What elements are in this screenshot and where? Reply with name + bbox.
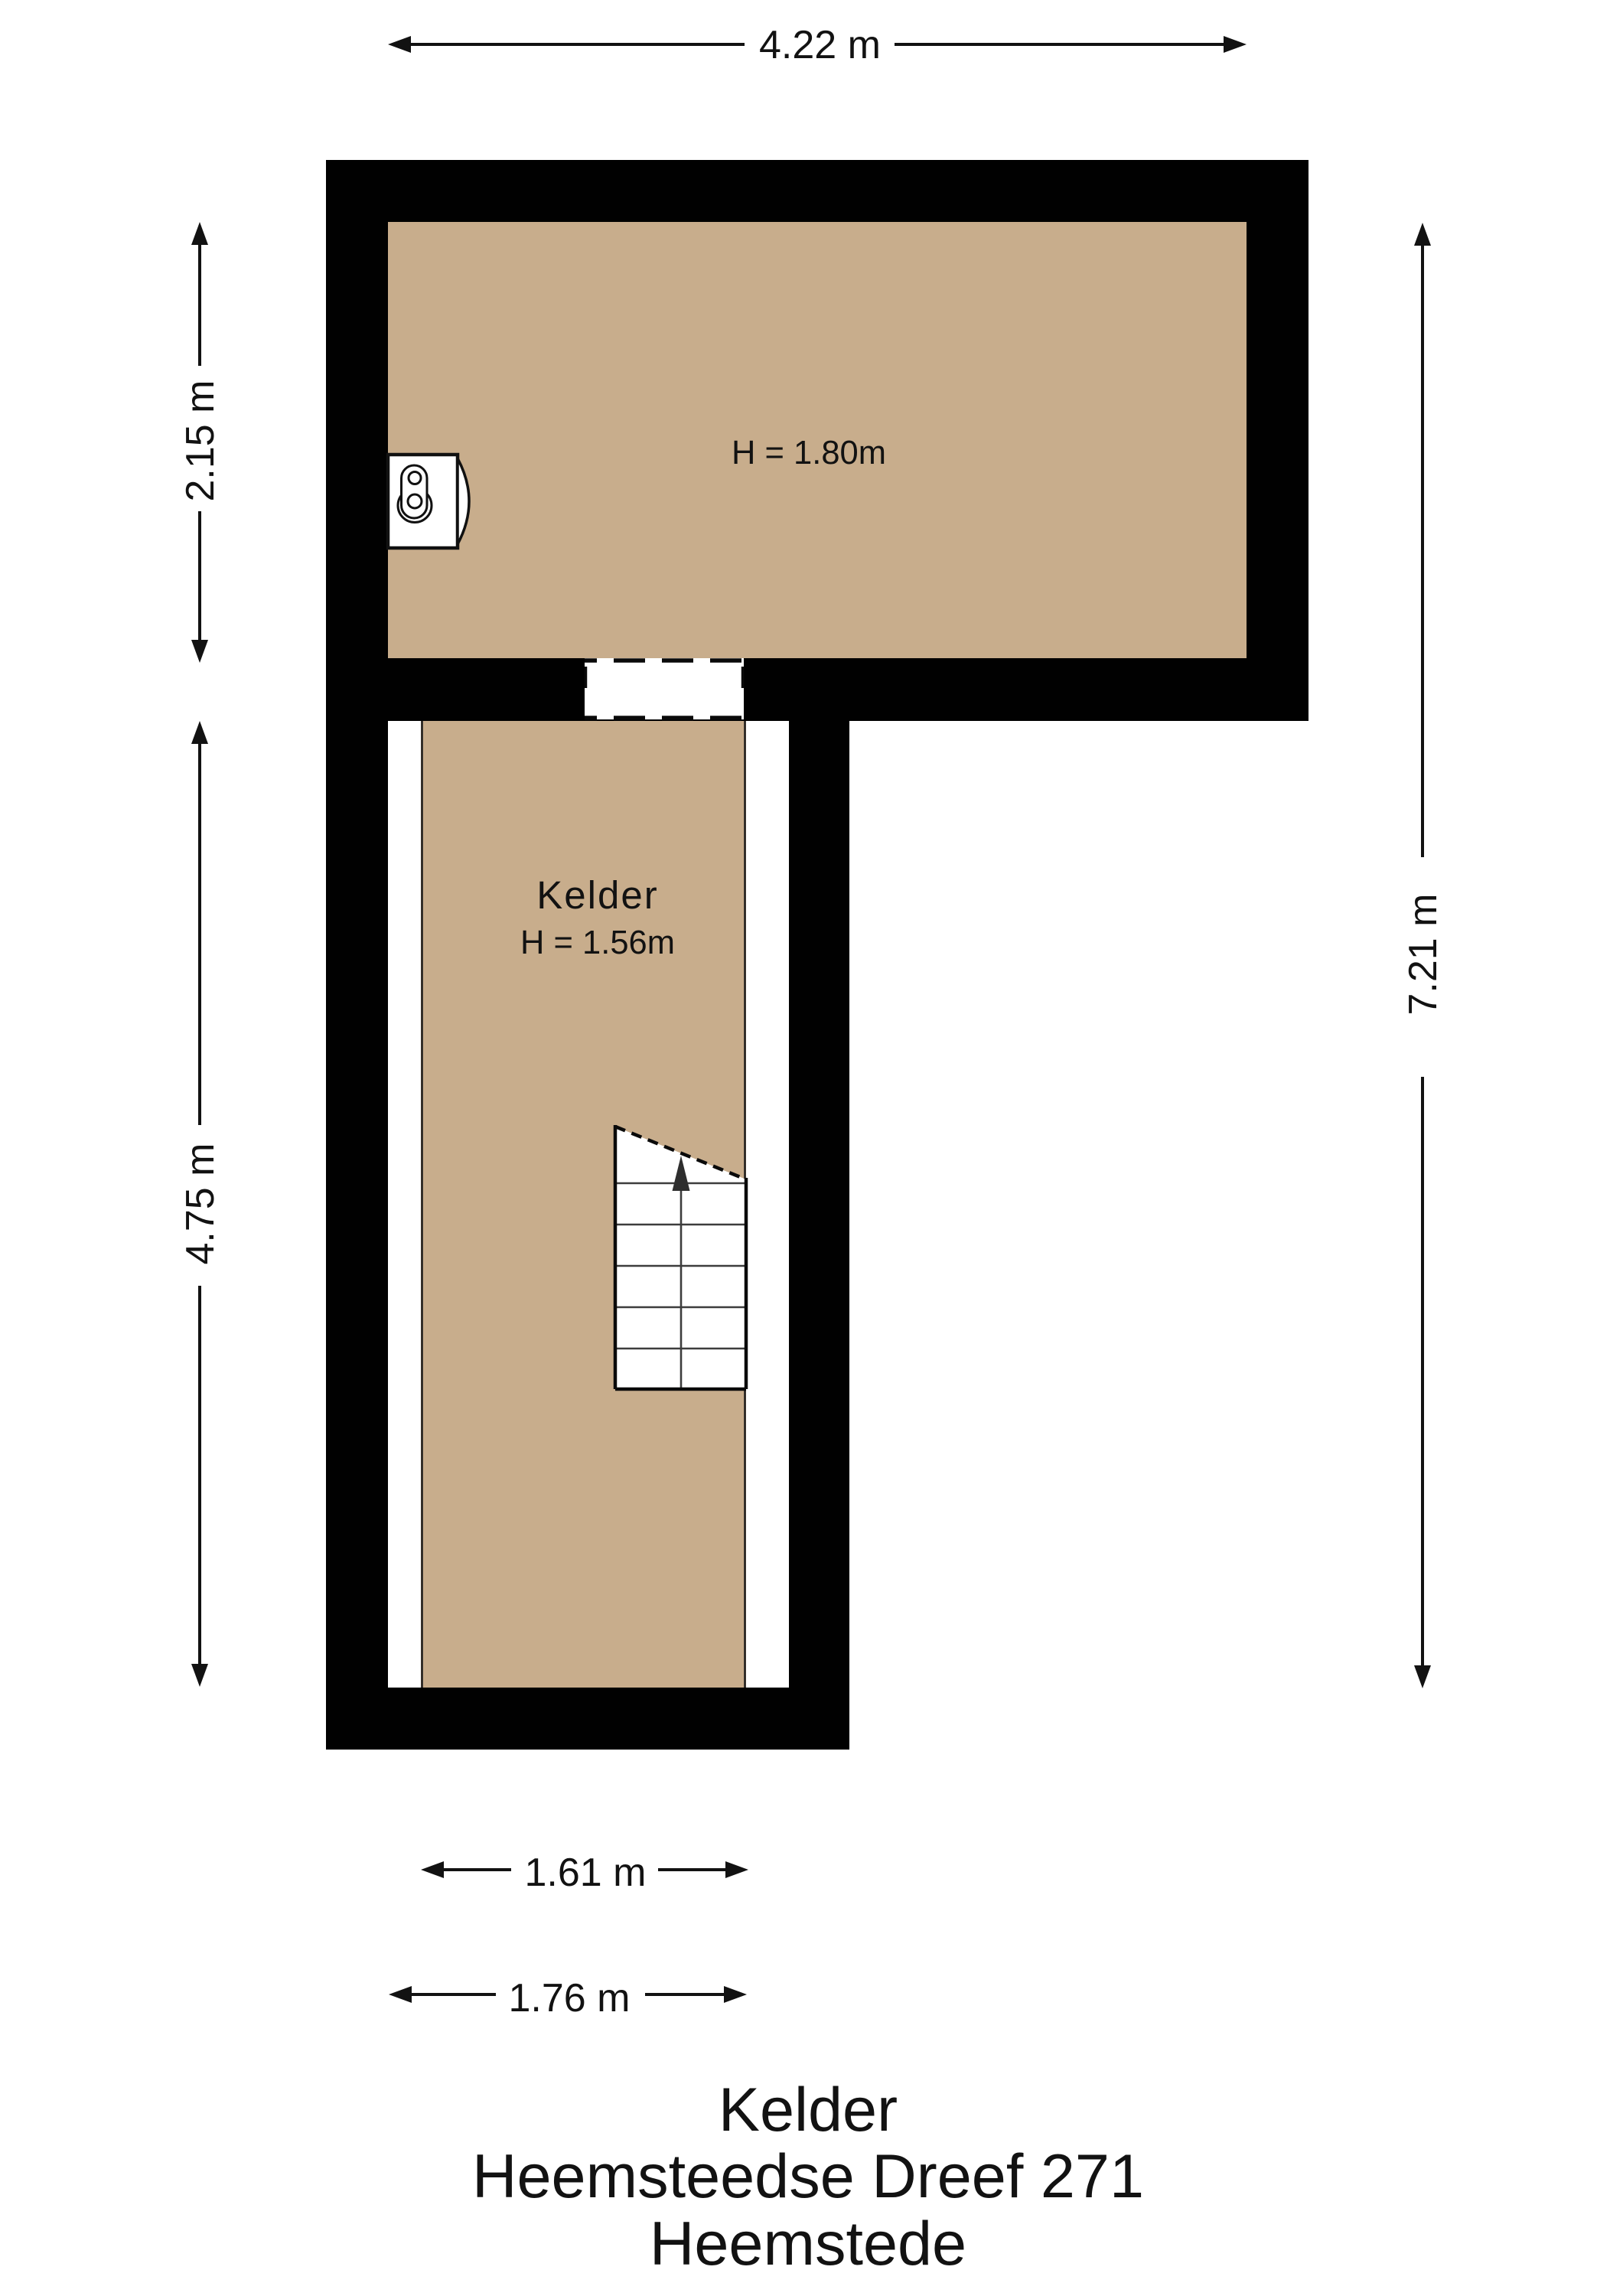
svg-text:2.15 m: 2.15 m <box>178 380 223 502</box>
svg-text:H = 1.56m: H = 1.56m <box>520 925 675 961</box>
svg-text:H = 1.80m: H = 1.80m <box>732 435 886 471</box>
svg-text:1.76 m: 1.76 m <box>509 1976 631 2020</box>
svg-text:Heemsteedse Dreef 271: Heemsteedse Dreef 271 <box>472 2142 1144 2211</box>
svg-text:4.75 m: 4.75 m <box>178 1143 223 1265</box>
svg-text:Heemstede: Heemstede <box>650 2210 966 2278</box>
svg-text:7.21 m: 7.21 m <box>1401 894 1445 1016</box>
svg-text:1.61 m: 1.61 m <box>525 1851 647 1895</box>
svg-text:Kelder: Kelder <box>719 2076 898 2144</box>
svg-text:Kelder: Kelder <box>536 873 658 917</box>
svg-text:4.22 m: 4.22 m <box>759 23 881 67</box>
